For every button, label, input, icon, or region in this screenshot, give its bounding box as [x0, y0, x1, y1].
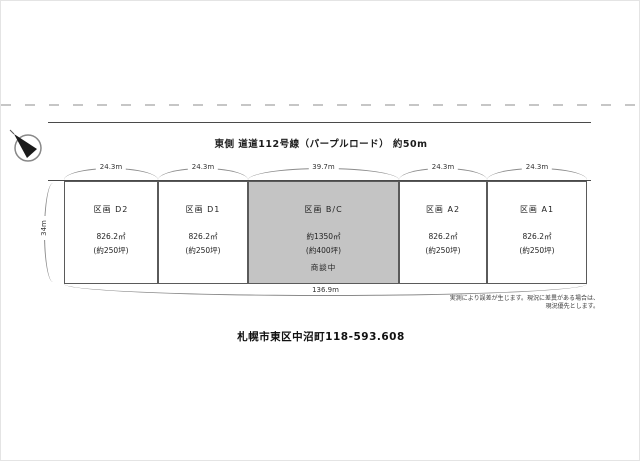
plot-area: 826.2㎡	[97, 231, 126, 242]
dimension-label: 39.7m	[308, 163, 338, 171]
property-address: 札幌市東区中沼町118-593.608	[1, 329, 640, 344]
plot-name: 区画 A1	[520, 204, 554, 215]
plot-d2: 区画 D2 826.2㎡ (約250坪)	[64, 181, 158, 284]
plot-name: 区画 A2	[426, 204, 460, 215]
plot-area: 826.2㎡	[429, 231, 458, 242]
dimension-brace-a2: 24.3m	[399, 168, 487, 180]
road-label: 東側 道道112号線（パープルロード） 約50m	[1, 136, 640, 150]
plot-status-badge: 商談中	[311, 262, 337, 273]
plot-tsubo: (約250坪)	[519, 245, 554, 256]
plot-tsubo: (約250坪)	[185, 245, 220, 256]
dimension-label-depth: 34m	[40, 216, 48, 240]
plot-name: 区画 D1	[186, 204, 221, 215]
plot-d1: 区画 D1 826.2㎡ (約250坪)	[158, 181, 248, 284]
plot-tsubo: (約250坪)	[93, 245, 128, 256]
dimension-label: 24.3m	[96, 163, 126, 171]
dimension-label: 24.3m	[188, 163, 218, 171]
dimension-label: 24.3m	[522, 163, 552, 171]
plot-tsubo: (約250坪)	[425, 245, 460, 256]
plot-area: 826.2㎡	[523, 231, 552, 242]
dimension-brace-d1: 24.3m	[158, 168, 248, 180]
plot-a2: 区画 A2 826.2㎡ (約250坪)	[399, 181, 487, 284]
plot-area: 約1350㎡	[306, 231, 340, 242]
road-edge-north	[48, 122, 591, 123]
road-centerline	[1, 104, 640, 106]
dimension-brace-d2: 24.3m	[64, 168, 158, 180]
dimension-brace-a1: 24.3m	[487, 168, 587, 180]
land-plot-diagram: 東側 道道112号線（パープルロード） 約50m 24.3m 24.3m 39.…	[0, 0, 640, 461]
plot-name: 区画 D2	[94, 204, 129, 215]
plot-area: 826.2㎡	[189, 231, 218, 242]
dimension-label-total: 136.9m	[307, 286, 344, 294]
plot-name: 区画 B/C	[304, 204, 342, 215]
plot-bc: 区画 B/C 約1350㎡ (約400坪) 商談中	[248, 181, 399, 284]
dimension-brace-bc: 39.7m	[248, 168, 399, 180]
dimension-label: 24.3m	[428, 163, 458, 171]
plot-a1: 区画 A1 826.2㎡ (約250坪)	[487, 181, 587, 284]
plot-tsubo: (約400坪)	[306, 245, 341, 256]
disclaimer-note: 実測により誤差が生じます。現況に差異がある場合は、現況優先とします。	[449, 295, 599, 311]
